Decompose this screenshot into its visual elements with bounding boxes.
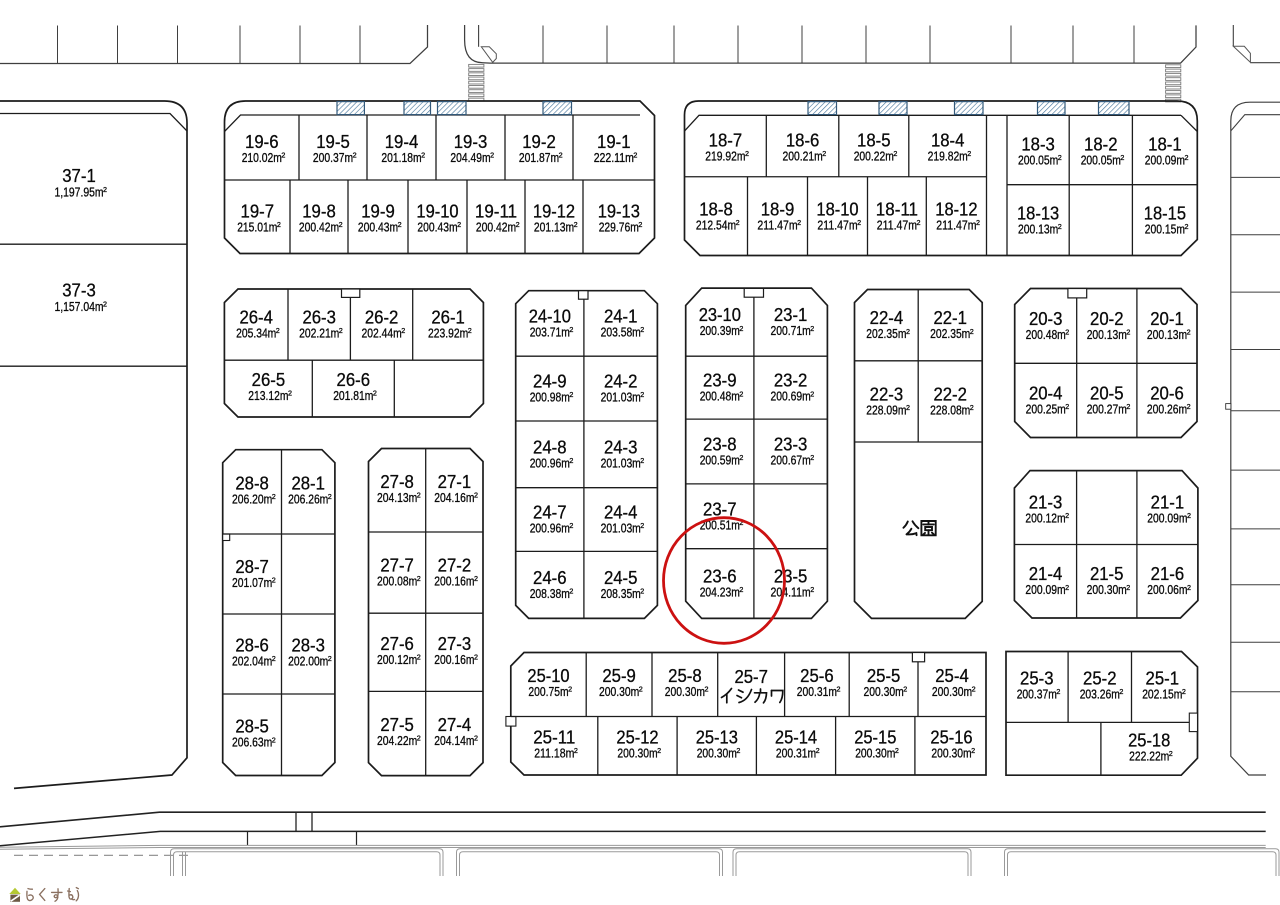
svg-text:2: 2 xyxy=(574,220,578,229)
svg-text:2: 2 xyxy=(917,218,921,227)
svg-text:2: 2 xyxy=(559,151,563,160)
svg-text:2: 2 xyxy=(468,326,472,335)
svg-text:25-14: 25-14 xyxy=(775,726,817,747)
svg-text:2: 2 xyxy=(736,218,740,227)
svg-text:211.47m: 211.47m xyxy=(757,219,797,233)
svg-text:200.12m: 200.12m xyxy=(377,653,417,667)
svg-text:202.00m: 202.00m xyxy=(288,655,328,669)
svg-text:2: 2 xyxy=(639,685,643,694)
svg-text:18-9: 18-9 xyxy=(761,199,795,220)
svg-text:2: 2 xyxy=(967,149,971,158)
svg-text:200.69m: 200.69m xyxy=(771,390,811,404)
svg-text:25-8: 25-8 xyxy=(668,665,702,686)
svg-text:200.37m: 200.37m xyxy=(313,151,353,165)
svg-text:222.11m: 222.11m xyxy=(594,151,634,165)
svg-text:2: 2 xyxy=(745,149,749,158)
svg-text:27-8: 27-8 xyxy=(380,471,414,492)
svg-text:19-12: 19-12 xyxy=(533,200,575,221)
svg-text:24-5: 24-5 xyxy=(604,567,638,588)
svg-text:19-5: 19-5 xyxy=(316,131,350,152)
svg-text:2: 2 xyxy=(972,685,976,694)
svg-text:2: 2 xyxy=(417,490,421,499)
svg-text:24-4: 24-4 xyxy=(604,502,638,523)
svg-text:18-4: 18-4 xyxy=(931,130,965,151)
svg-text:25-11: 25-11 xyxy=(533,726,575,747)
svg-text:206.20m: 206.20m xyxy=(232,492,272,506)
svg-text:2: 2 xyxy=(810,324,814,333)
svg-text:204.22m: 204.22m xyxy=(377,734,417,748)
svg-text:28-3: 28-3 xyxy=(291,635,325,656)
svg-text:19-7: 19-7 xyxy=(241,200,275,221)
svg-text:200.21m: 200.21m xyxy=(783,150,823,164)
svg-text:27-3: 27-3 xyxy=(438,633,472,654)
svg-text:200.09m: 200.09m xyxy=(1025,583,1065,597)
svg-text:2: 2 xyxy=(1058,153,1062,162)
svg-text:18-7: 18-7 xyxy=(709,130,743,151)
svg-text:2: 2 xyxy=(457,220,461,229)
svg-text:2: 2 xyxy=(970,403,974,412)
svg-text:2: 2 xyxy=(516,220,520,229)
svg-text:204.11m: 204.11m xyxy=(771,586,811,600)
svg-text:25-10: 25-10 xyxy=(527,665,569,686)
svg-text:213.12m: 213.12m xyxy=(248,389,288,403)
svg-text:2: 2 xyxy=(857,218,861,227)
svg-text:200.22m: 200.22m xyxy=(854,150,894,164)
svg-text:200.30m: 200.30m xyxy=(931,746,971,760)
svg-text:201.87m: 201.87m xyxy=(519,151,559,165)
svg-text:18-10: 18-10 xyxy=(816,199,858,220)
svg-text:2: 2 xyxy=(277,220,281,229)
svg-text:2: 2 xyxy=(971,746,975,755)
svg-text:21-1: 21-1 xyxy=(1151,491,1185,512)
svg-text:204.49m: 204.49m xyxy=(450,151,490,165)
svg-text:2: 2 xyxy=(339,326,343,335)
svg-text:19-4: 19-4 xyxy=(385,131,419,152)
svg-text:2: 2 xyxy=(398,220,402,229)
svg-text:2: 2 xyxy=(797,218,801,227)
svg-text:25-4: 25-4 xyxy=(935,665,969,686)
svg-text:27-6: 27-6 xyxy=(380,633,414,654)
svg-text:2: 2 xyxy=(1056,687,1060,696)
svg-text:208.38m: 208.38m xyxy=(530,587,570,601)
svg-text:25-6: 25-6 xyxy=(800,665,834,686)
svg-text:2: 2 xyxy=(906,327,910,336)
svg-text:201.18m: 201.18m xyxy=(381,151,421,165)
svg-text:200.42m: 200.42m xyxy=(299,220,339,234)
svg-text:18-12: 18-12 xyxy=(935,199,977,220)
svg-text:204.16m: 204.16m xyxy=(434,491,474,505)
svg-text:23-9: 23-9 xyxy=(703,370,737,391)
svg-text:2: 2 xyxy=(1126,402,1130,411)
svg-text:37-1: 37-1 xyxy=(62,165,96,186)
svg-text:23-8: 23-8 xyxy=(703,434,737,455)
svg-text:2: 2 xyxy=(328,654,332,663)
svg-text:37-3: 37-3 xyxy=(62,280,96,301)
svg-text:23-10: 23-10 xyxy=(699,304,741,325)
svg-text:203.71m: 203.71m xyxy=(530,326,570,340)
svg-text:202.44m: 202.44m xyxy=(362,327,402,341)
svg-text:24-9: 24-9 xyxy=(533,371,567,392)
svg-text:206.26m: 206.26m xyxy=(288,492,328,506)
svg-text:2: 2 xyxy=(328,492,332,501)
svg-text:202.15m: 202.15m xyxy=(1142,687,1182,701)
svg-text:23-1: 23-1 xyxy=(774,304,808,325)
svg-text:200.09m: 200.09m xyxy=(1147,511,1187,525)
svg-text:19-1: 19-1 xyxy=(597,131,631,152)
svg-text:211.47m: 211.47m xyxy=(877,219,917,233)
svg-text:201.13m: 201.13m xyxy=(534,220,574,234)
svg-text:200.13m: 200.13m xyxy=(1018,223,1058,237)
svg-text:200.15m: 200.15m xyxy=(1145,223,1185,237)
svg-text:19-8: 19-8 xyxy=(302,200,336,221)
svg-text:211.47m: 211.47m xyxy=(817,219,857,233)
svg-text:2: 2 xyxy=(1065,402,1069,411)
svg-text:2: 2 xyxy=(490,151,494,160)
svg-text:27-4: 27-4 xyxy=(438,714,472,735)
svg-text:208.35m: 208.35m xyxy=(601,587,641,601)
svg-text:201.03m: 201.03m xyxy=(601,456,641,470)
svg-text:200.43m: 200.43m xyxy=(417,220,457,234)
svg-text:203.26m: 203.26m xyxy=(1080,687,1120,701)
svg-text:25-3: 25-3 xyxy=(1020,667,1054,688)
svg-text:202.35m: 202.35m xyxy=(866,327,906,341)
svg-text:2: 2 xyxy=(401,326,405,335)
svg-text:200.59m: 200.59m xyxy=(700,454,740,468)
svg-text:212.54m: 212.54m xyxy=(696,219,736,233)
svg-text:2: 2 xyxy=(574,746,578,755)
svg-text:2: 2 xyxy=(339,220,343,229)
svg-text:23-7: 23-7 xyxy=(703,498,737,519)
svg-text:200.98m: 200.98m xyxy=(530,391,570,405)
svg-text:2: 2 xyxy=(1187,328,1191,337)
svg-text:2: 2 xyxy=(736,746,740,755)
svg-text:22-2: 22-2 xyxy=(933,383,967,404)
svg-text:2: 2 xyxy=(1065,328,1069,337)
svg-text:21-5: 21-5 xyxy=(1090,563,1124,584)
svg-text:23-5: 23-5 xyxy=(774,566,808,587)
svg-text:202.35m: 202.35m xyxy=(930,327,970,341)
svg-text:200.48m: 200.48m xyxy=(1026,328,1066,342)
svg-text:2: 2 xyxy=(976,218,980,227)
svg-text:2: 2 xyxy=(373,389,377,398)
svg-text:2: 2 xyxy=(837,685,841,694)
svg-text:18-5: 18-5 xyxy=(857,130,891,151)
svg-text:26-4: 26-4 xyxy=(239,307,273,328)
svg-text:229.76m: 229.76m xyxy=(599,220,639,234)
svg-text:2: 2 xyxy=(810,389,814,398)
svg-text:26-3: 26-3 xyxy=(302,307,336,328)
svg-text:19-9: 19-9 xyxy=(361,200,395,221)
svg-text:2: 2 xyxy=(1187,402,1191,411)
svg-text:2: 2 xyxy=(810,453,814,462)
svg-text:200.67m: 200.67m xyxy=(771,454,811,468)
svg-text:26-2: 26-2 xyxy=(365,307,399,328)
svg-text:2: 2 xyxy=(1187,583,1191,592)
svg-text:24-7: 24-7 xyxy=(533,502,567,523)
svg-text:204.23m: 204.23m xyxy=(700,586,740,600)
svg-text:18-13: 18-13 xyxy=(1017,203,1059,224)
svg-text:24-2: 24-2 xyxy=(604,371,638,392)
svg-text:2: 2 xyxy=(640,456,644,465)
svg-text:200.26m: 200.26m xyxy=(1147,402,1187,416)
svg-text:2: 2 xyxy=(657,746,661,755)
svg-text:25-9: 25-9 xyxy=(602,665,636,686)
svg-text:211.47m: 211.47m xyxy=(936,219,976,233)
svg-text:2: 2 xyxy=(906,403,910,412)
svg-text:2: 2 xyxy=(816,746,820,755)
svg-text:26-5: 26-5 xyxy=(252,369,286,390)
svg-text:2: 2 xyxy=(474,734,478,743)
svg-text:24-1: 24-1 xyxy=(604,306,638,327)
svg-text:228.09m: 228.09m xyxy=(866,403,906,417)
svg-text:1,197.95m: 1,197.95m xyxy=(54,186,103,200)
svg-text:2: 2 xyxy=(272,492,276,501)
svg-text:23-6: 23-6 xyxy=(703,566,737,587)
svg-text:19-13: 19-13 xyxy=(598,200,640,221)
svg-text:2: 2 xyxy=(417,734,421,743)
svg-text:2: 2 xyxy=(272,576,276,585)
svg-text:2: 2 xyxy=(569,456,573,465)
svg-text:19-6: 19-6 xyxy=(245,131,279,152)
svg-text:219.92m: 219.92m xyxy=(705,150,745,164)
svg-text:20-6: 20-6 xyxy=(1150,382,1184,403)
svg-text:2: 2 xyxy=(640,521,644,530)
svg-text:2: 2 xyxy=(474,490,478,499)
svg-text:2: 2 xyxy=(474,652,478,661)
svg-text:200.08m: 200.08m xyxy=(377,575,417,589)
svg-text:2: 2 xyxy=(1126,583,1130,592)
svg-text:2: 2 xyxy=(633,151,637,160)
svg-text:200.31m: 200.31m xyxy=(776,746,816,760)
svg-text:200.96m: 200.96m xyxy=(530,522,570,536)
svg-text:18-11: 18-11 xyxy=(876,199,918,220)
svg-text:219.82m: 219.82m xyxy=(928,150,968,164)
svg-text:25-7: 25-7 xyxy=(734,666,768,687)
svg-text:2: 2 xyxy=(970,327,974,336)
svg-text:25-12: 25-12 xyxy=(616,726,658,747)
svg-text:20-5: 20-5 xyxy=(1090,382,1124,403)
svg-text:25-2: 25-2 xyxy=(1083,667,1117,688)
svg-text:22-1: 22-1 xyxy=(933,307,967,328)
svg-text:25-13: 25-13 xyxy=(696,726,738,747)
svg-text:2: 2 xyxy=(640,587,644,596)
svg-text:28-5: 28-5 xyxy=(235,716,269,737)
svg-text:2: 2 xyxy=(1185,153,1189,162)
svg-text:2: 2 xyxy=(281,151,285,160)
svg-text:2: 2 xyxy=(739,389,743,398)
svg-text:2: 2 xyxy=(903,685,907,694)
svg-text:200.30m: 200.30m xyxy=(697,746,737,760)
svg-text:200.05m: 200.05m xyxy=(1018,154,1058,168)
svg-text:2: 2 xyxy=(1058,222,1062,231)
svg-text:206.63m: 206.63m xyxy=(232,736,272,750)
svg-text:25-16: 25-16 xyxy=(930,726,972,747)
svg-text:201.81m: 201.81m xyxy=(333,389,373,403)
svg-text:2: 2 xyxy=(1126,328,1130,337)
svg-text:20-4: 20-4 xyxy=(1029,382,1063,403)
svg-text:2: 2 xyxy=(739,453,743,462)
svg-text:223.92m: 223.92m xyxy=(428,327,468,341)
svg-text:204.13m: 204.13m xyxy=(377,491,417,505)
svg-text:2: 2 xyxy=(822,149,826,158)
svg-text:200.05m: 200.05m xyxy=(1081,154,1121,168)
svg-text:2: 2 xyxy=(739,324,743,333)
svg-text:2: 2 xyxy=(569,587,573,596)
svg-text:2: 2 xyxy=(353,151,357,160)
svg-text:200.16m: 200.16m xyxy=(434,653,474,667)
svg-text:26-6: 26-6 xyxy=(337,369,371,390)
svg-text:2: 2 xyxy=(1065,511,1069,520)
svg-text:24-8: 24-8 xyxy=(533,436,567,457)
svg-text:18-2: 18-2 xyxy=(1084,134,1118,155)
svg-text:27-2: 27-2 xyxy=(438,555,472,576)
svg-text:200.30m: 200.30m xyxy=(617,746,657,760)
svg-text:22-4: 22-4 xyxy=(870,307,904,328)
svg-text:200.42m: 200.42m xyxy=(476,220,516,234)
svg-text:2: 2 xyxy=(705,685,709,694)
svg-text:2: 2 xyxy=(895,746,899,755)
svg-text:222.22m: 222.22m xyxy=(1129,749,1169,763)
svg-text:203.58m: 203.58m xyxy=(601,326,641,340)
svg-text:18-8: 18-8 xyxy=(699,199,733,220)
svg-text:23-3: 23-3 xyxy=(774,434,808,455)
svg-text:2: 2 xyxy=(640,325,644,334)
svg-text:18-6: 18-6 xyxy=(786,130,820,151)
svg-text:2: 2 xyxy=(569,521,573,530)
svg-text:19-2: 19-2 xyxy=(522,131,556,152)
svg-text:28-7: 28-7 xyxy=(235,556,269,577)
svg-text:200.31m: 200.31m xyxy=(797,685,837,699)
svg-text:2: 2 xyxy=(1120,153,1124,162)
svg-text:2: 2 xyxy=(288,389,292,398)
svg-text:24-6: 24-6 xyxy=(533,567,567,588)
svg-text:28-1: 28-1 xyxy=(291,472,325,493)
svg-text:200.37m: 200.37m xyxy=(1017,687,1057,701)
svg-text:201.03m: 201.03m xyxy=(601,522,641,536)
svg-text:210.02m: 210.02m xyxy=(242,151,282,165)
svg-text:201.07m: 201.07m xyxy=(232,576,272,590)
svg-text:200.30m: 200.30m xyxy=(864,685,904,699)
svg-text:2: 2 xyxy=(810,585,814,594)
svg-text:2: 2 xyxy=(568,685,572,694)
svg-text:2: 2 xyxy=(1169,749,1173,758)
svg-text:211.18m: 211.18m xyxy=(534,746,574,760)
svg-text:2: 2 xyxy=(1065,583,1069,592)
svg-text:202.21m: 202.21m xyxy=(299,327,339,341)
svg-text:200.30m: 200.30m xyxy=(1087,583,1127,597)
svg-text:200.71m: 200.71m xyxy=(771,324,811,338)
svg-text:200.27m: 200.27m xyxy=(1087,402,1127,416)
svg-text:2: 2 xyxy=(474,574,478,583)
svg-text:25-15: 25-15 xyxy=(854,726,896,747)
svg-text:24-10: 24-10 xyxy=(529,306,571,327)
svg-text:200.25m: 200.25m xyxy=(1026,402,1066,416)
svg-text:200.30m: 200.30m xyxy=(932,685,972,699)
svg-text:2: 2 xyxy=(739,585,743,594)
svg-text:19-11: 19-11 xyxy=(475,200,517,221)
svg-text:200.30m: 200.30m xyxy=(599,685,639,699)
svg-text:25-5: 25-5 xyxy=(867,665,901,686)
svg-text:19-3: 19-3 xyxy=(454,131,488,152)
svg-text:23-2: 23-2 xyxy=(774,370,808,391)
svg-text:27-1: 27-1 xyxy=(438,471,472,492)
svg-text:200.43m: 200.43m xyxy=(358,220,398,234)
svg-text:20-3: 20-3 xyxy=(1029,308,1063,329)
svg-text:18-15: 18-15 xyxy=(1144,203,1186,224)
svg-text:2: 2 xyxy=(640,390,644,399)
svg-text:2: 2 xyxy=(272,654,276,663)
svg-text:2: 2 xyxy=(893,149,897,158)
svg-text:200.09m: 200.09m xyxy=(1145,154,1185,168)
svg-text:200.39m: 200.39m xyxy=(700,324,740,338)
svg-text:2: 2 xyxy=(103,185,107,194)
svg-text:25-18: 25-18 xyxy=(1128,729,1170,750)
svg-text:2: 2 xyxy=(1185,222,1189,231)
svg-text:20-1: 20-1 xyxy=(1150,308,1184,329)
svg-text:26-1: 26-1 xyxy=(431,307,465,328)
svg-text:2: 2 xyxy=(1187,511,1191,520)
svg-text:25-1: 25-1 xyxy=(1146,667,1180,688)
svg-text:2: 2 xyxy=(569,325,573,334)
svg-text:21-3: 21-3 xyxy=(1029,491,1063,512)
svg-text:20-2: 20-2 xyxy=(1090,308,1124,329)
svg-text:2: 2 xyxy=(103,300,107,309)
svg-text:18-1: 18-1 xyxy=(1148,134,1182,155)
svg-text:228.08m: 228.08m xyxy=(930,403,970,417)
svg-text:200.96m: 200.96m xyxy=(530,456,570,470)
svg-text:2: 2 xyxy=(272,735,276,744)
svg-text:19-10: 19-10 xyxy=(416,200,458,221)
svg-text:200.12m: 200.12m xyxy=(1025,511,1065,525)
svg-text:200.30m: 200.30m xyxy=(855,746,895,760)
svg-text:28-8: 28-8 xyxy=(235,472,269,493)
svg-text:202.04m: 202.04m xyxy=(232,655,272,669)
svg-text:24-3: 24-3 xyxy=(604,436,638,457)
svg-text:200.48m: 200.48m xyxy=(700,390,740,404)
svg-text:2: 2 xyxy=(1119,687,1123,696)
svg-text:18-3: 18-3 xyxy=(1021,134,1055,155)
svg-text:2: 2 xyxy=(1182,687,1186,696)
svg-text:201.03m: 201.03m xyxy=(601,391,641,405)
svg-text:200.16m: 200.16m xyxy=(434,575,474,589)
svg-text:27-7: 27-7 xyxy=(380,555,414,576)
svg-text:215.01m: 215.01m xyxy=(237,220,277,234)
svg-text:21-6: 21-6 xyxy=(1151,563,1185,584)
svg-text:2: 2 xyxy=(276,326,280,335)
svg-text:200.13m: 200.13m xyxy=(1147,328,1187,342)
svg-text:22-3: 22-3 xyxy=(870,383,904,404)
svg-text:200.30m: 200.30m xyxy=(665,685,705,699)
svg-text:205.34m: 205.34m xyxy=(236,327,276,341)
svg-text:27-5: 27-5 xyxy=(380,714,414,735)
svg-text:2: 2 xyxy=(417,652,421,661)
svg-text:21-4: 21-4 xyxy=(1029,563,1063,584)
svg-text:200.75m: 200.75m xyxy=(528,685,568,699)
svg-text:200.13m: 200.13m xyxy=(1087,328,1127,342)
svg-text:28-6: 28-6 xyxy=(235,635,269,656)
svg-text:2: 2 xyxy=(638,220,642,229)
svg-text:2: 2 xyxy=(421,151,425,160)
svg-text:1,157.04m: 1,157.04m xyxy=(54,300,103,314)
svg-text:204.14m: 204.14m xyxy=(434,734,474,748)
svg-text:2: 2 xyxy=(417,574,421,583)
svg-text:200.06m: 200.06m xyxy=(1147,583,1187,597)
svg-text:2: 2 xyxy=(569,390,573,399)
